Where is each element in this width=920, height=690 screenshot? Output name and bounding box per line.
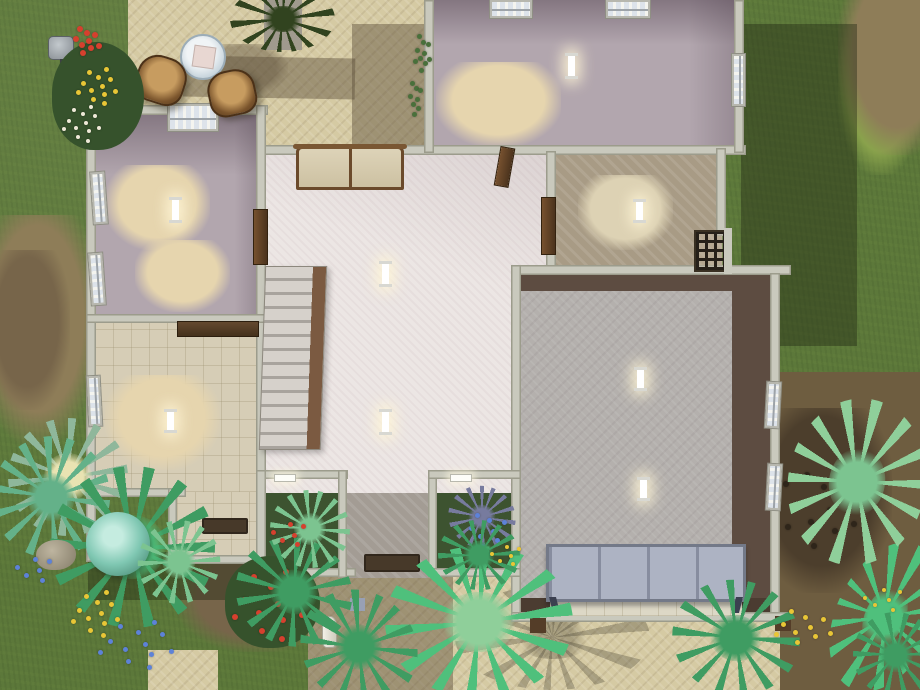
flowers-red-top-left-dot [86, 38, 92, 44]
window-bedroom-upper-2[interactable] [606, 0, 650, 18]
flowers-white-top-left-dot [76, 135, 80, 139]
flowers-white-top-left[interactable] [56, 100, 108, 146]
flowers-white-top-left-dot [72, 108, 76, 112]
flowers-yellow-right-2[interactable] [858, 580, 908, 620]
ceiling-light-bedroom-left[interactable] [172, 198, 179, 222]
flowers-blue-garden-2-dot [24, 573, 29, 578]
courtyard-right-blue-flowers-dot [475, 513, 480, 518]
flowers-blue-garden-2-dot [33, 557, 38, 562]
wall-vine-2-dot [418, 88, 423, 93]
ceiling-light-garage-1[interactable] [637, 368, 644, 390]
wall-courtyard-left-top [256, 470, 348, 479]
wall-vine-2 [404, 76, 428, 122]
flowers-yellow-garden-dot [84, 594, 89, 599]
flowers-yellow-right-2-dot [882, 588, 886, 592]
bedroom-left-glow-2 [135, 240, 230, 312]
hibiscus-red-flowers-dot [232, 614, 238, 620]
flowers-white-top-left-dot [97, 126, 101, 130]
exterior-stair-railing[interactable] [694, 230, 728, 272]
bedroom-upper-lamp-glow [436, 62, 561, 147]
ceiling-light-bedroom-upper[interactable] [568, 54, 575, 78]
courtyard-right-yellow-flowers-dot [490, 552, 494, 556]
flowers-white-top-left-dot [81, 112, 85, 116]
dirt-patch-left-dark [0, 250, 70, 410]
flowers-yellow-right-dot [795, 640, 800, 645]
flowers-blue-garden-dot [98, 650, 103, 655]
wall-dining-right [716, 148, 726, 236]
wall-vine-1-dot [427, 57, 432, 62]
flowers-white-top-left-dot [74, 126, 78, 130]
courtyard-left-red-flowers-dot [301, 524, 306, 529]
flowers-blue-garden-dot [123, 647, 128, 652]
flowers-yellow-right[interactable] [768, 602, 840, 652]
flowers-yellow-garden-dot [109, 602, 114, 607]
courtyard-left-wall-light[interactable] [274, 474, 296, 482]
flowers-red-top-left-dot [88, 45, 94, 51]
flowers-yellow-right-2-dot [873, 603, 877, 607]
flowers-yellow-top-left-dot [104, 67, 109, 72]
courtyard-right-blue-flowers-dot [502, 520, 507, 525]
flowers-yellow-right-dot [813, 634, 818, 639]
ceiling-light-hall-1[interactable] [382, 262, 389, 286]
flowers-white-top-left-dot [84, 121, 88, 125]
flowers-yellow-top-left-dot [87, 70, 92, 75]
wall-courtyard-right-top [428, 470, 521, 479]
ceiling-light-hall-2[interactable] [382, 410, 389, 434]
flowers-yellow-garden-dot [104, 590, 109, 595]
wall-vine-2-dot [410, 81, 415, 86]
flowers-blue-garden-2-dot [47, 559, 52, 564]
flowers-yellow-garden-dot [71, 619, 76, 624]
flowers-yellow-right-dot [828, 631, 833, 636]
flowers-blue-garden-dot [169, 649, 174, 654]
window-garage-2[interactable] [766, 464, 782, 511]
window-bedroom-upper-right[interactable] [732, 54, 745, 106]
staircase[interactable] [259, 266, 327, 450]
wall-garage-top [511, 265, 791, 275]
wall-garage-right [770, 273, 780, 622]
front-french-door[interactable] [296, 146, 404, 190]
flowers-yellow-top-left-dot [76, 90, 81, 95]
wall-vine-1-dot [426, 42, 431, 47]
wall-vine-2-dot [408, 94, 413, 99]
courtyard-right-yellow-flowers-dot [505, 545, 509, 549]
flowers-yellow-right-2-dot [898, 590, 902, 594]
flowers-yellow-top-left-dot [108, 77, 113, 82]
bedroom-left-glow-1 [105, 165, 210, 250]
flowers-blue-garden-dot [136, 630, 141, 635]
courtyard-left-red-flowers-dot [292, 533, 297, 538]
courtyard-left-red-flowers-dot [280, 538, 285, 543]
flowers-yellow-right-dot [803, 615, 808, 620]
flowers-yellow-garden-dot [77, 608, 82, 613]
flowers-white-top-left-dot [67, 119, 71, 123]
window-bathroom[interactable] [87, 376, 103, 427]
flowers-white-top-left-dot [87, 129, 91, 133]
flowers-yellow-top-left-dot [96, 75, 101, 80]
ceiling-light-bathroom[interactable] [167, 410, 174, 432]
flowers-blue-garden-dot [152, 620, 157, 625]
flowers-blue-garden-2-dot [15, 565, 20, 570]
flowers-red-top-left-dot [96, 43, 102, 49]
courtyard-right-yellow-flowers-dot [498, 559, 502, 563]
wall-vine-1-dot [418, 56, 423, 61]
flowers-blue-garden-dot [108, 639, 113, 644]
mud-debris-dot [785, 524, 791, 530]
flowers-blue-garden-dot [126, 659, 131, 664]
courtyard-right-wall-light[interactable] [450, 474, 472, 482]
door-hall-right[interactable] [542, 198, 555, 254]
wall-vine-2-dot [412, 112, 417, 117]
flowers-red-top-left-dot [79, 42, 85, 48]
flowers-yellow-right-2-dot [887, 598, 891, 602]
flowers-yellow-right-dot [793, 630, 798, 635]
flowers-yellow-right-2-dot [863, 596, 867, 600]
flowers-blue-garden-2-dot [37, 568, 42, 573]
flowers-yellow-garden-dot [95, 600, 100, 605]
flowers-yellow-top-left-dot [102, 92, 107, 97]
flowers-blue-garden-dot [160, 632, 165, 637]
flowers-white-top-left-dot [86, 139, 90, 143]
window-bedroom-upper-1[interactable] [490, 0, 532, 18]
flowers-blue-garden-dot [118, 624, 123, 629]
flowers-white-top-left-dot [89, 105, 93, 109]
scene-canvas [0, 0, 920, 690]
wall-vine-1-dot [419, 68, 424, 73]
wall-vine-1-dot [413, 59, 418, 64]
courtyard-right-yellow-flowers[interactable] [486, 538, 526, 574]
flowers-blue-garden-2-dot [40, 578, 45, 583]
flowers-yellow-top-left-dot [100, 84, 105, 89]
flowers-blue-garden-dot [143, 642, 148, 647]
wall-vine-1-dot [415, 48, 420, 53]
ceiling-light-garage-2[interactable] [640, 478, 647, 500]
flowers-white-top-left-dot [62, 127, 66, 131]
flowers-yellow-top-left-dot [113, 89, 118, 94]
wall-vine-1-dot [417, 34, 422, 39]
flowers-yellow-top-left-dot [81, 81, 86, 86]
flowers-red-top-left[interactable] [66, 20, 106, 62]
courtyard-left-red-flowers-dot [295, 542, 300, 547]
bathroom-counter[interactable] [178, 322, 258, 336]
flowers-yellow-right-dot [821, 617, 826, 622]
wall-vine-1 [410, 26, 436, 80]
flowers-red-top-left-dot [77, 26, 83, 32]
flowers-blue-garden-dot [147, 665, 152, 670]
flowers-red-top-left-dot [80, 50, 86, 56]
flowers-yellow-right-dot [808, 625, 813, 630]
flowers-red-top-left-dot [92, 32, 98, 38]
dining-room-glow [578, 175, 673, 250]
courtyard-left-red-flowers[interactable] [266, 514, 312, 556]
flowers-blue-garden-2[interactable] [10, 548, 58, 592]
door-hall-to-bedroom-left[interactable] [254, 210, 267, 264]
flowers-blue-garden[interactable] [88, 614, 186, 674]
flowers-yellow-right-dot [789, 609, 794, 614]
courtyard-left-red-flowers-dot [288, 522, 293, 527]
flowers-yellow-top-left-dot [89, 88, 94, 93]
railing-post [724, 228, 732, 274]
flowers-yellow-right-dot [774, 632, 779, 637]
window-garage-1[interactable] [765, 382, 781, 429]
flowers-blue-garden-dot [149, 652, 154, 657]
wall-vine-2-dot [416, 106, 421, 111]
flowers-red-top-left-dot [73, 36, 79, 42]
ceiling-light-dining[interactable] [636, 200, 643, 222]
courtyard-right-yellow-flowers-dot [511, 562, 515, 566]
wall-vine-2-dot [415, 97, 420, 102]
courtyard-left-red-flowers-dot [271, 530, 276, 535]
courtyard-right-yellow-flowers-dot [517, 547, 521, 551]
flowers-red-top-left-dot [84, 30, 90, 36]
wall-vine-1-dot [422, 51, 427, 56]
flowers-yellow-right-2-dot [891, 608, 895, 612]
courtyard-right-yellow-flowers-dot [509, 554, 513, 558]
flowers-white-top-left-dot [93, 114, 97, 118]
flowers-yellow-right-dot [781, 622, 786, 627]
